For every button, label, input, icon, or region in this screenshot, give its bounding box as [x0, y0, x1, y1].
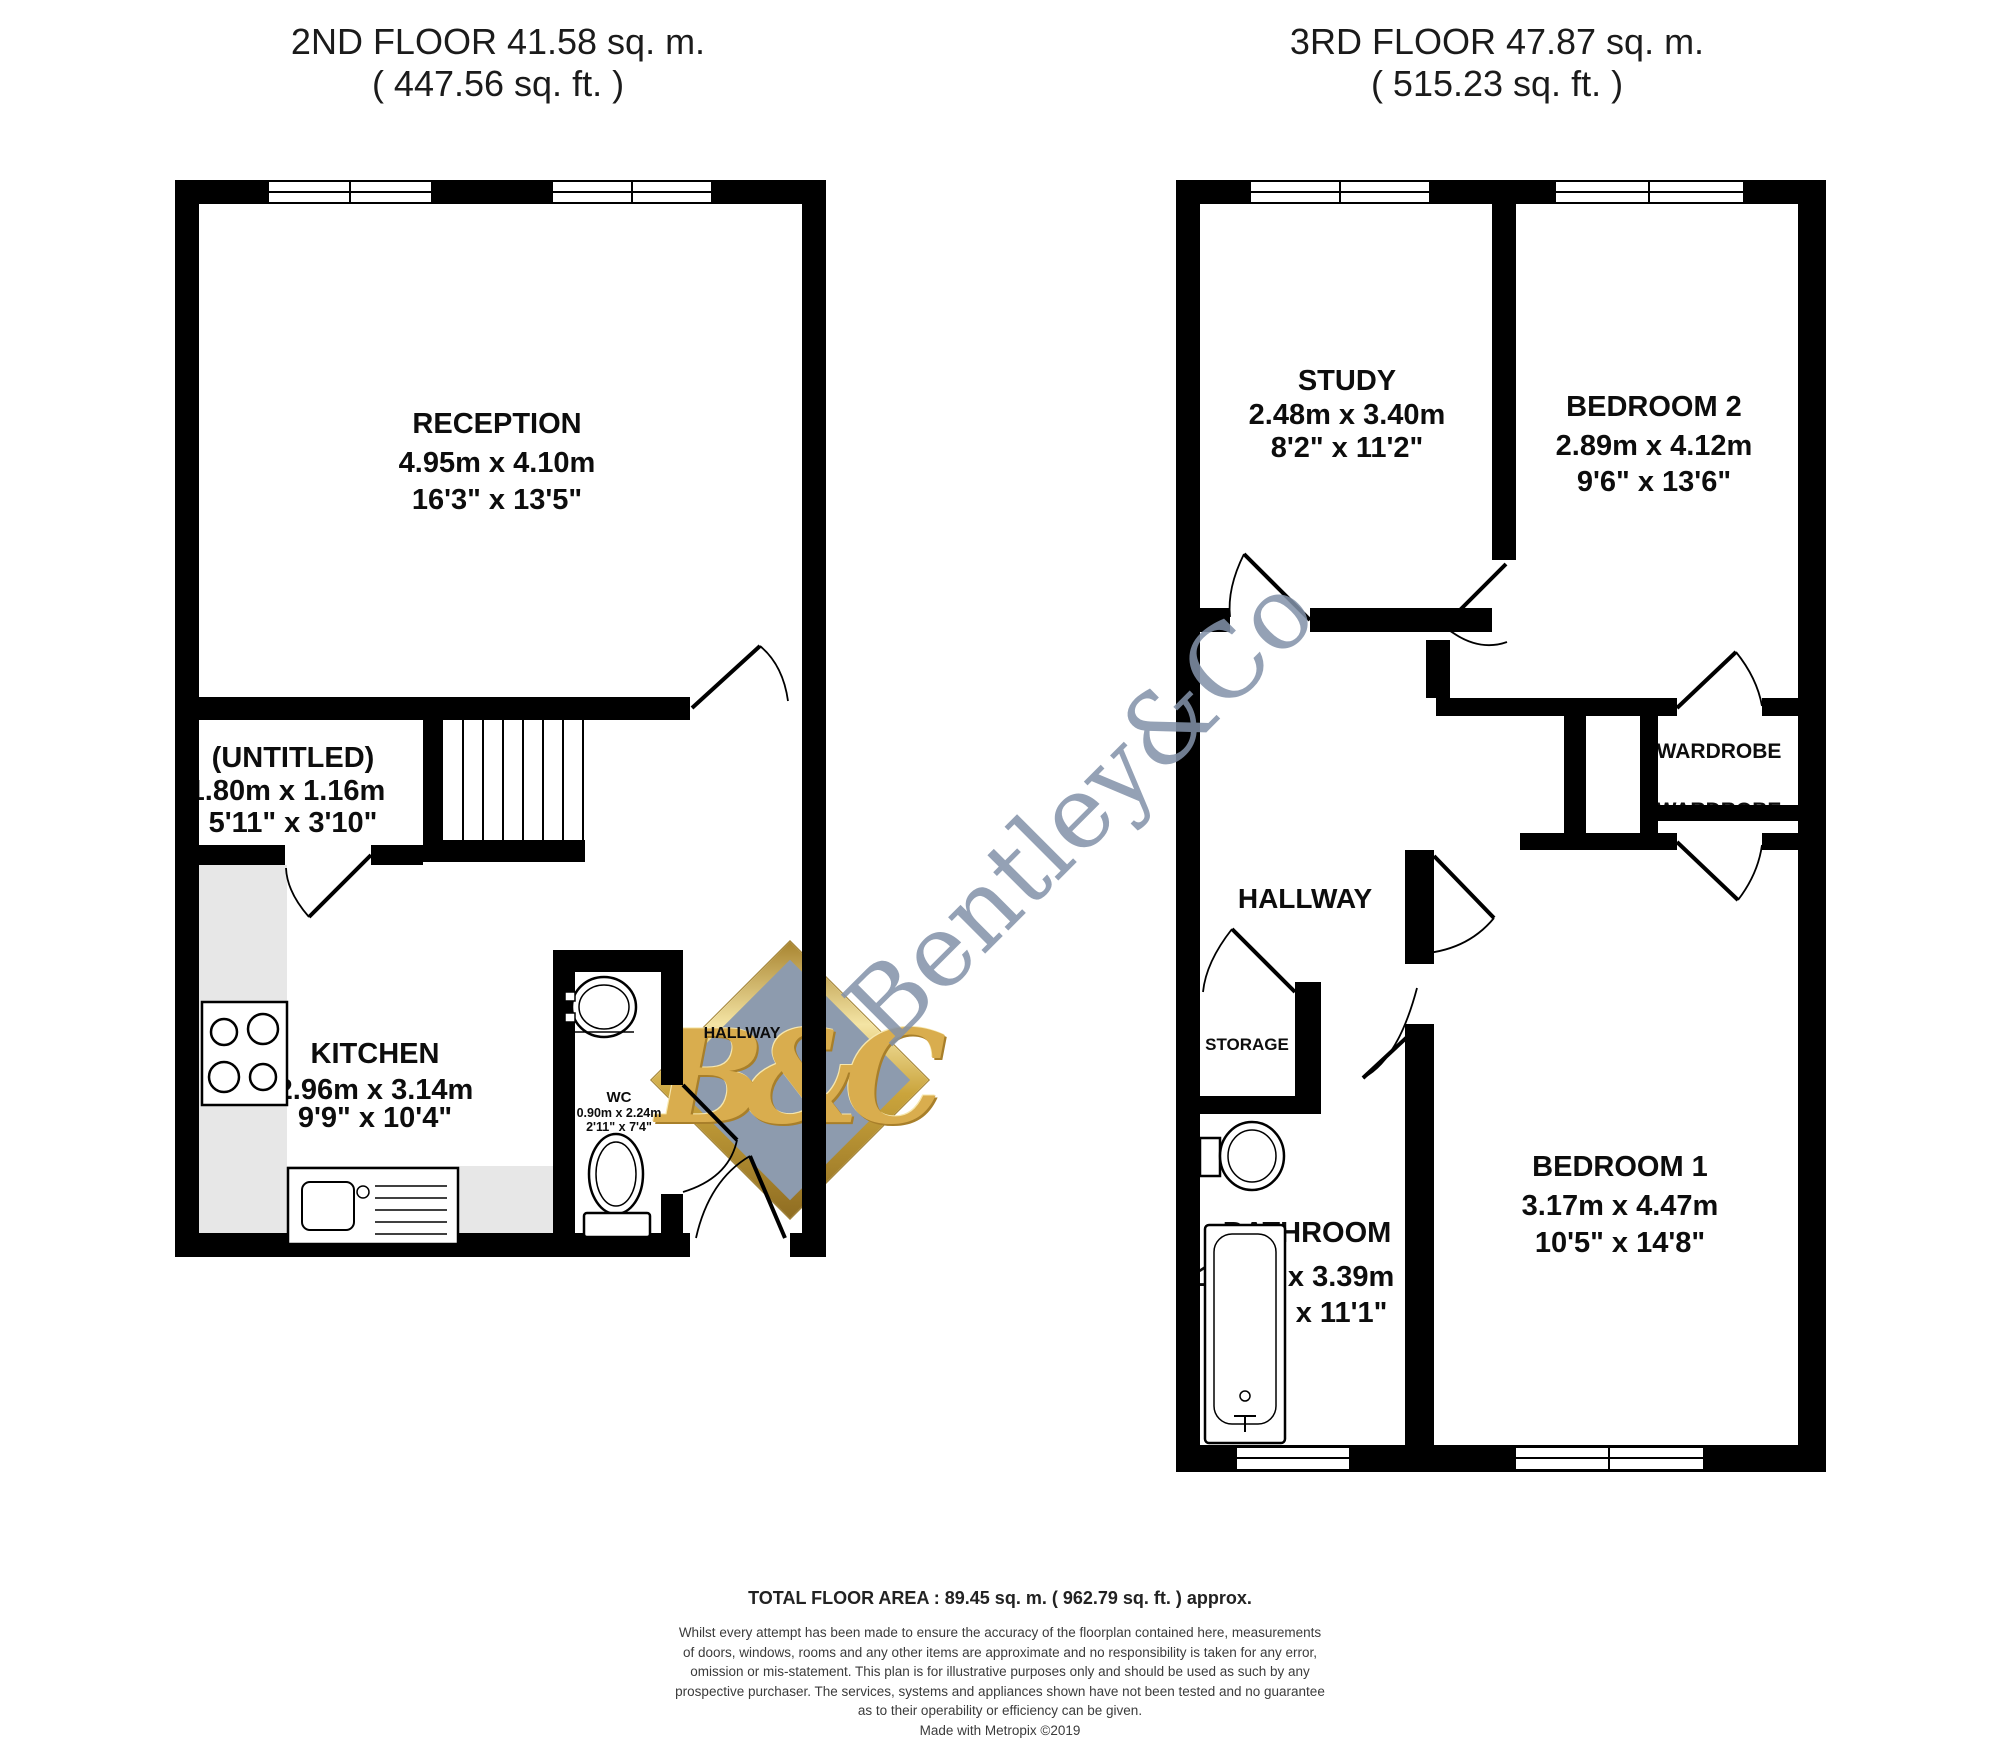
bedroom1-label: BEDROOM 1	[1532, 1151, 1708, 1183]
untitled-label: (UNTITLED)	[212, 742, 375, 774]
bedroom2-metric: 2.89m x 4.12m	[1556, 430, 1753, 462]
disclaimer: Whilst every attempt has been made to en…	[0, 1623, 2000, 1741]
stove-icon	[202, 1002, 287, 1105]
floor3-title-block: 3RD FLOOR 47.87 sq. m. ( 515.23 sq. ft. …	[1187, 22, 1807, 104]
window	[268, 181, 432, 203]
floor3-subtitle: ( 515.23 sq. ft. )	[1187, 64, 1807, 104]
hallway-label-3rd: HALLWAY	[1238, 883, 1373, 914]
wc-metric: 0.90m x 2.24m	[577, 1106, 662, 1120]
study-imperial: 8'2" x 11'2"	[1271, 432, 1424, 464]
stairs-icon	[463, 720, 583, 840]
door-swing	[1677, 652, 1762, 708]
floor2-title: 2ND FLOOR 41.58 sq. m.	[188, 22, 808, 62]
total-floor-area: TOTAL FLOOR AREA : 89.45 sq. m. ( 962.79…	[0, 1588, 2000, 1609]
reception-metric: 4.95m x 4.10m	[399, 447, 596, 479]
entry-opening	[690, 1233, 790, 1257]
kitchen-imperial: 9'9" x 10'4"	[298, 1102, 452, 1134]
kitchen-label: KITCHEN	[311, 1038, 440, 1070]
disclaimer-line: of doors, windows, rooms and any other i…	[0, 1643, 2000, 1663]
disclaimer-line: prospective purchaser. The services, sys…	[0, 1682, 2000, 1702]
untitled-metric: 1.80m x 1.16m	[189, 775, 386, 807]
window	[1250, 181, 1430, 203]
reception-imperial: 16'3" x 13'5"	[412, 484, 582, 516]
door-swing	[696, 1156, 785, 1238]
metropix-credit: Made with Metropix ©2019	[0, 1721, 2000, 1741]
footer: TOTAL FLOOR AREA : 89.45 sq. m. ( 962.79…	[0, 1588, 2000, 1741]
kitchen-sink-icon	[288, 1168, 458, 1244]
door-swing	[683, 1085, 737, 1192]
door-swing	[692, 646, 788, 708]
disclaimer-line: omission or mis-statement. This plan is …	[0, 1662, 2000, 1682]
door-swing	[1203, 929, 1295, 992]
floor2-title-block: 2ND FLOOR 41.58 sq. m. ( 447.56 sq. ft. …	[188, 22, 808, 104]
window	[552, 181, 712, 203]
window	[1555, 181, 1744, 203]
wc-sink-icon	[565, 977, 636, 1037]
bedroom1-metric: 3.17m x 4.47m	[1522, 1190, 1719, 1222]
window	[1236, 1447, 1350, 1470]
door-swing	[286, 855, 371, 917]
floorplan-3rd-floor: STUDY 2.48m x 3.40m 8'2" x 11'2" BEDROOM…	[1176, 180, 1826, 1472]
floor3-title: 3RD FLOOR 47.87 sq. m.	[1187, 22, 1807, 62]
door-swing	[1444, 564, 1507, 645]
floor2-subtitle: ( 447.56 sq. ft. )	[188, 64, 808, 104]
bedroom1-imperial: 10'5" x 14'8"	[1535, 1227, 1705, 1259]
disclaimer-line: Whilst every attempt has been made to en…	[0, 1623, 2000, 1643]
disclaimer-line: as to their operability or efficiency ca…	[0, 1701, 2000, 1721]
study-metric: 2.48m x 3.40m	[1249, 399, 1446, 431]
storage-label: STORAGE	[1205, 1035, 1289, 1054]
untitled-imperial: 5'11" x 3'10"	[209, 807, 378, 839]
bathtub-icon	[1205, 1225, 1285, 1443]
bedroom2-imperial: 9'6" x 13'6"	[1577, 466, 1731, 498]
door-swing	[1677, 842, 1762, 900]
reception-label: RECEPTION	[412, 408, 581, 440]
toilet-icon	[584, 1134, 650, 1237]
hallway-label-2nd: HALLWAY	[704, 1025, 781, 1042]
wardrobe1-label: WARDROBE	[1657, 740, 1782, 763]
floorplan-page: 2ND FLOOR 41.58 sq. m. ( 447.56 sq. ft. …	[0, 0, 2000, 1754]
study-label: STUDY	[1298, 365, 1396, 397]
toilet-icon	[1200, 1122, 1284, 1190]
bedroom2-label: BEDROOM 2	[1566, 391, 1742, 423]
wc-imperial: 2'11" x 7'4"	[586, 1120, 652, 1134]
floorplan-2nd-floor: RECEPTION 4.95m x 4.10m 16'3" x 13'5" (U…	[175, 180, 826, 1257]
wc-label: WC	[607, 1089, 632, 1106]
window	[1515, 1447, 1704, 1470]
